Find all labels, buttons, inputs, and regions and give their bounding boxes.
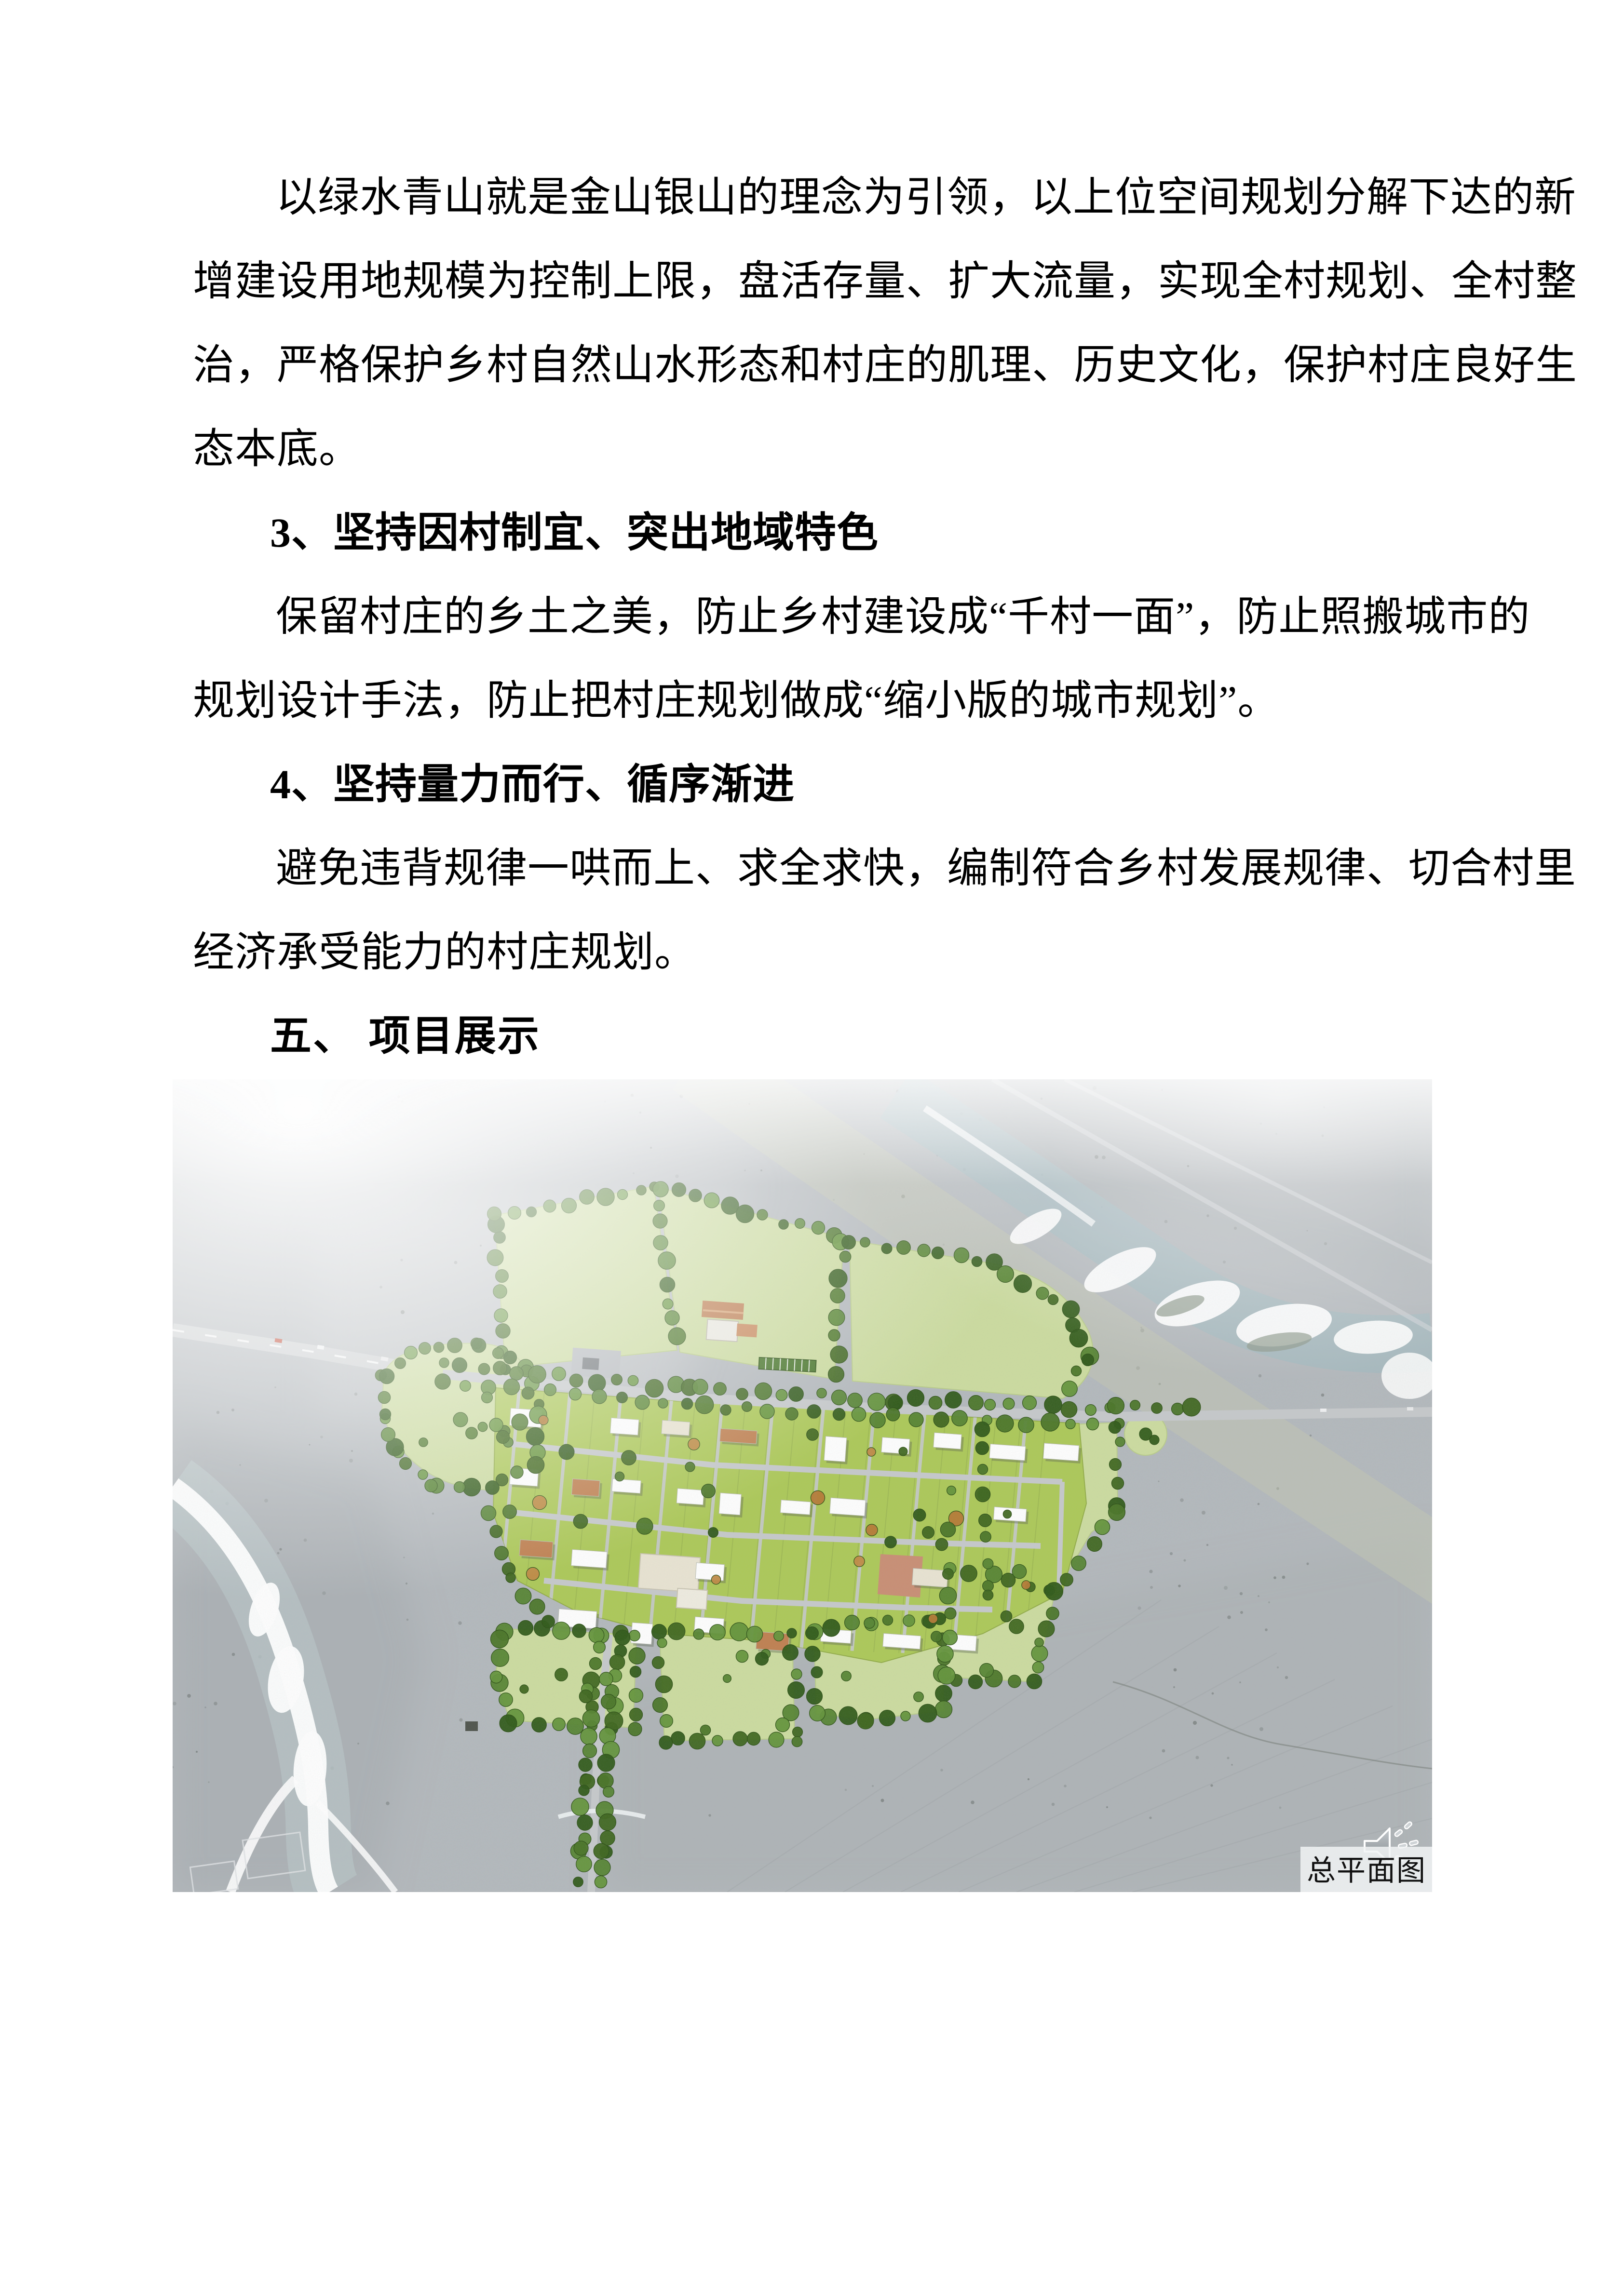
master-plan-image: 总平面图 xyxy=(173,1079,1432,1892)
master-plan-figure: 总平面图 xyxy=(173,1079,1432,1892)
paragraph-line: 增建设用地规模为控制上限，盘活存量、扩大流量，实现全村规划、全村整 xyxy=(193,257,1577,305)
figure-caption: 总平面图 xyxy=(1300,1847,1432,1892)
paragraph-line: 治，严格保护乡村自然山水形态和村庄的肌理、历史文化，保护村庄良好生 xyxy=(193,341,1577,389)
section-heading-projects: 五、 项目展示 xyxy=(270,1012,541,1060)
document-page: 以绿水青山就是金山银山的理念为引领，以上位空间规划分解下达的新 增建设用地规模为… xyxy=(0,0,1624,2296)
paragraph-line: 态本底。 xyxy=(193,425,361,473)
paragraph-line: 经济承受能力的村庄规划。 xyxy=(193,928,696,976)
caption-text: 总平面图 xyxy=(1307,1855,1426,1887)
paragraph-line: 以绿水青山就是金山银山的理念为引领，以上位空间规划分解下达的新 xyxy=(276,174,1576,221)
paragraph-line: 保留村庄的乡土之美，防止乡村建设成“千村一面”，防止照搬城市的 xyxy=(276,593,1530,641)
paragraph-line: 避免违背规律一哄而上、求全求快，编制符合乡村发展规律、切合村里 xyxy=(276,845,1576,892)
subheading-4: 4、坚持量力而行、循序渐进 xyxy=(270,761,795,808)
paragraph-line: 规划设计手法，防止把村庄规划做成“缩小版的城市规划”。 xyxy=(193,677,1279,725)
white-vignette xyxy=(173,1079,1432,1892)
white-vignette xyxy=(173,1079,1432,1185)
subheading-3: 3、坚持因村制宜、突出地域特色 xyxy=(270,509,879,557)
